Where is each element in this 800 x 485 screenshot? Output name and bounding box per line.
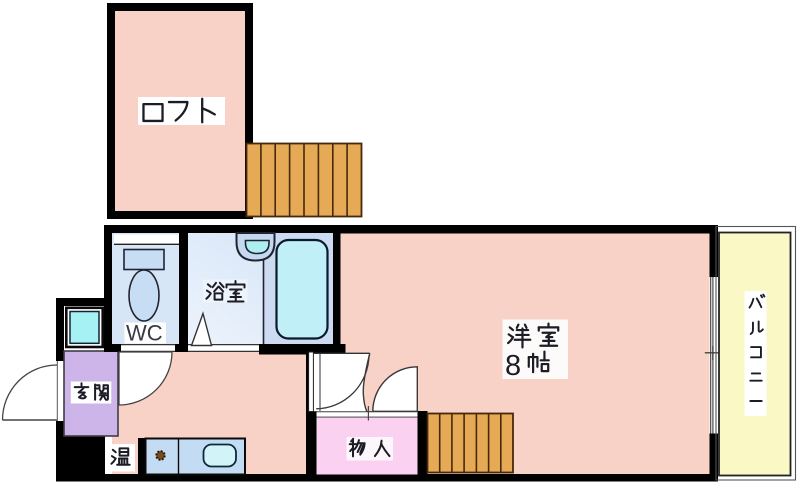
svg-text:WC: WC [126,321,163,346]
svg-text:8: 8 [505,350,521,382]
